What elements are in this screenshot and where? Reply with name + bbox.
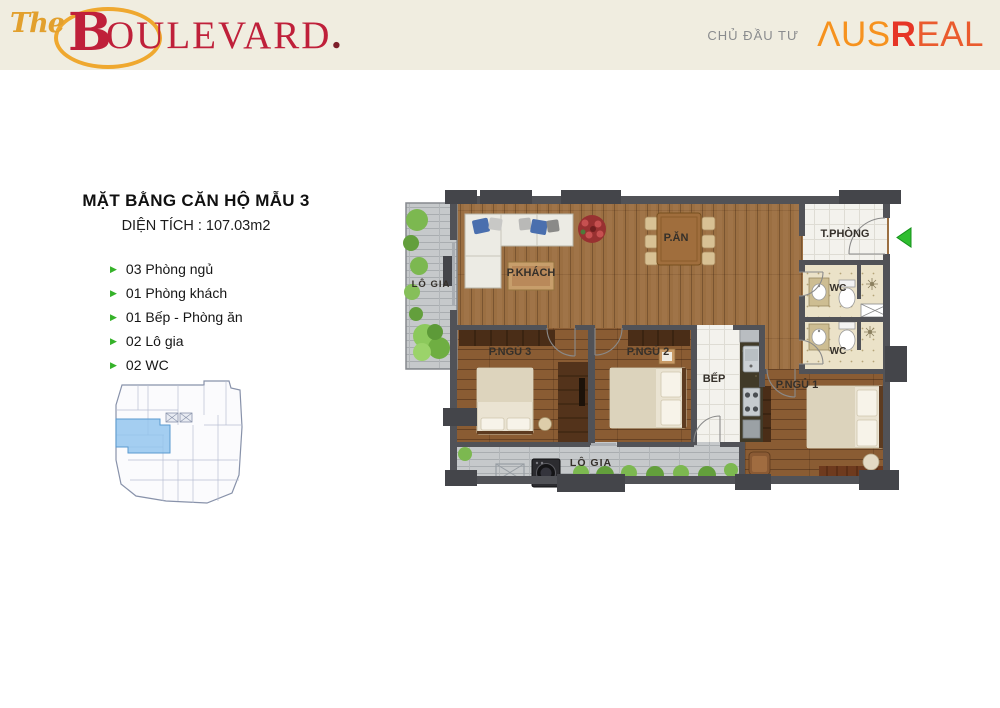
label-tphong: T.PHÒNG bbox=[821, 227, 870, 240]
arrow-bullet-icon: ▶ bbox=[110, 289, 117, 298]
page-title: MẶT BẰNG CĂN HỘ MẪU 3 bbox=[60, 191, 332, 211]
arrow-bullet-icon: ▶ bbox=[110, 313, 117, 322]
sliding-door-left-balcony bbox=[452, 242, 455, 306]
room-kitchen-floor bbox=[694, 325, 740, 445]
entry-arrow-icon bbox=[897, 228, 911, 247]
feature-label: 01 Bếp - Phòng ăn bbox=[126, 309, 243, 325]
area-subtitle: DIỆN TÍCH : 107.03m2 bbox=[60, 218, 332, 234]
label-pngu2: P.NGỦ 2 bbox=[627, 345, 670, 358]
key-plan-map bbox=[108, 375, 263, 520]
label-pan: P.ĂN bbox=[664, 231, 689, 244]
header-band: The B OULEVARD. CHỦ ĐẦU TƯ ΛUSREAL bbox=[0, 0, 1000, 70]
ausreal-logo: ΛUSREAL bbox=[817, 15, 984, 55]
feature-label: 01 Phòng khách bbox=[126, 285, 227, 301]
arrow-bullet-icon: ▶ bbox=[110, 337, 117, 346]
sliding-door-bottom-balcony bbox=[591, 443, 616, 446]
brochure-page: The B OULEVARD. CHỦ ĐẦU TƯ ΛUSREAL MẶT B… bbox=[0, 0, 1000, 708]
label-logia-left: LÔ GIA bbox=[412, 278, 451, 290]
label-logia-bottom: LÔ GIA bbox=[570, 456, 612, 469]
list-item: ▶03 Phòng ngủ bbox=[110, 257, 350, 281]
label-pngu3: P.NGỦ 3 bbox=[489, 345, 532, 358]
list-item: ▶01 Phòng khách bbox=[110, 281, 350, 305]
label-wc1: WC bbox=[830, 283, 847, 294]
feature-list: ▶03 Phòng ngủ ▶01 Phòng khách ▶01 Bếp - … bbox=[110, 257, 350, 377]
flower-pot bbox=[578, 215, 606, 243]
developer-label: CHỦ ĐẦU TƯ bbox=[707, 28, 799, 43]
developer-block: CHỦ ĐẦU TƯ ΛUSREAL bbox=[707, 0, 984, 70]
logo-the-script: The bbox=[10, 8, 64, 39]
label-bep: BẾP bbox=[703, 372, 726, 385]
feature-label: 03 Phòng ngủ bbox=[126, 261, 213, 277]
label-pngu1: P.NGỦ 1 bbox=[776, 378, 819, 391]
arrow-bullet-icon: ▶ bbox=[110, 265, 117, 274]
ausreal-aus: ΛUS bbox=[817, 15, 891, 54]
logo-wordmark: OULEVARD. bbox=[106, 13, 343, 59]
logo-wordmark-text: OULEVARD bbox=[106, 14, 331, 57]
logo-period: . bbox=[331, 14, 343, 57]
ausreal-eal: EAL bbox=[916, 15, 984, 54]
list-item: ▶02 Lô gia bbox=[110, 329, 350, 353]
label-pkhach: P.KHÁCH bbox=[507, 266, 556, 279]
arrow-bullet-icon: ▶ bbox=[110, 361, 117, 370]
list-item: ▶02 WC bbox=[110, 353, 350, 377]
ausreal-r: R bbox=[891, 15, 917, 54]
list-item: ▶01 Bếp - Phòng ăn bbox=[110, 305, 350, 329]
boulevard-logo: The B OULEVARD. bbox=[8, 0, 348, 70]
feature-label: 02 WC bbox=[126, 357, 169, 373]
label-wc2: WC bbox=[830, 346, 847, 357]
feature-label: 02 Lô gia bbox=[126, 333, 184, 349]
floor-plan: LÔ GIA P.KHÁCH P.ĂN T.PHÒNG WC WC P.NGỦ … bbox=[395, 180, 925, 525]
